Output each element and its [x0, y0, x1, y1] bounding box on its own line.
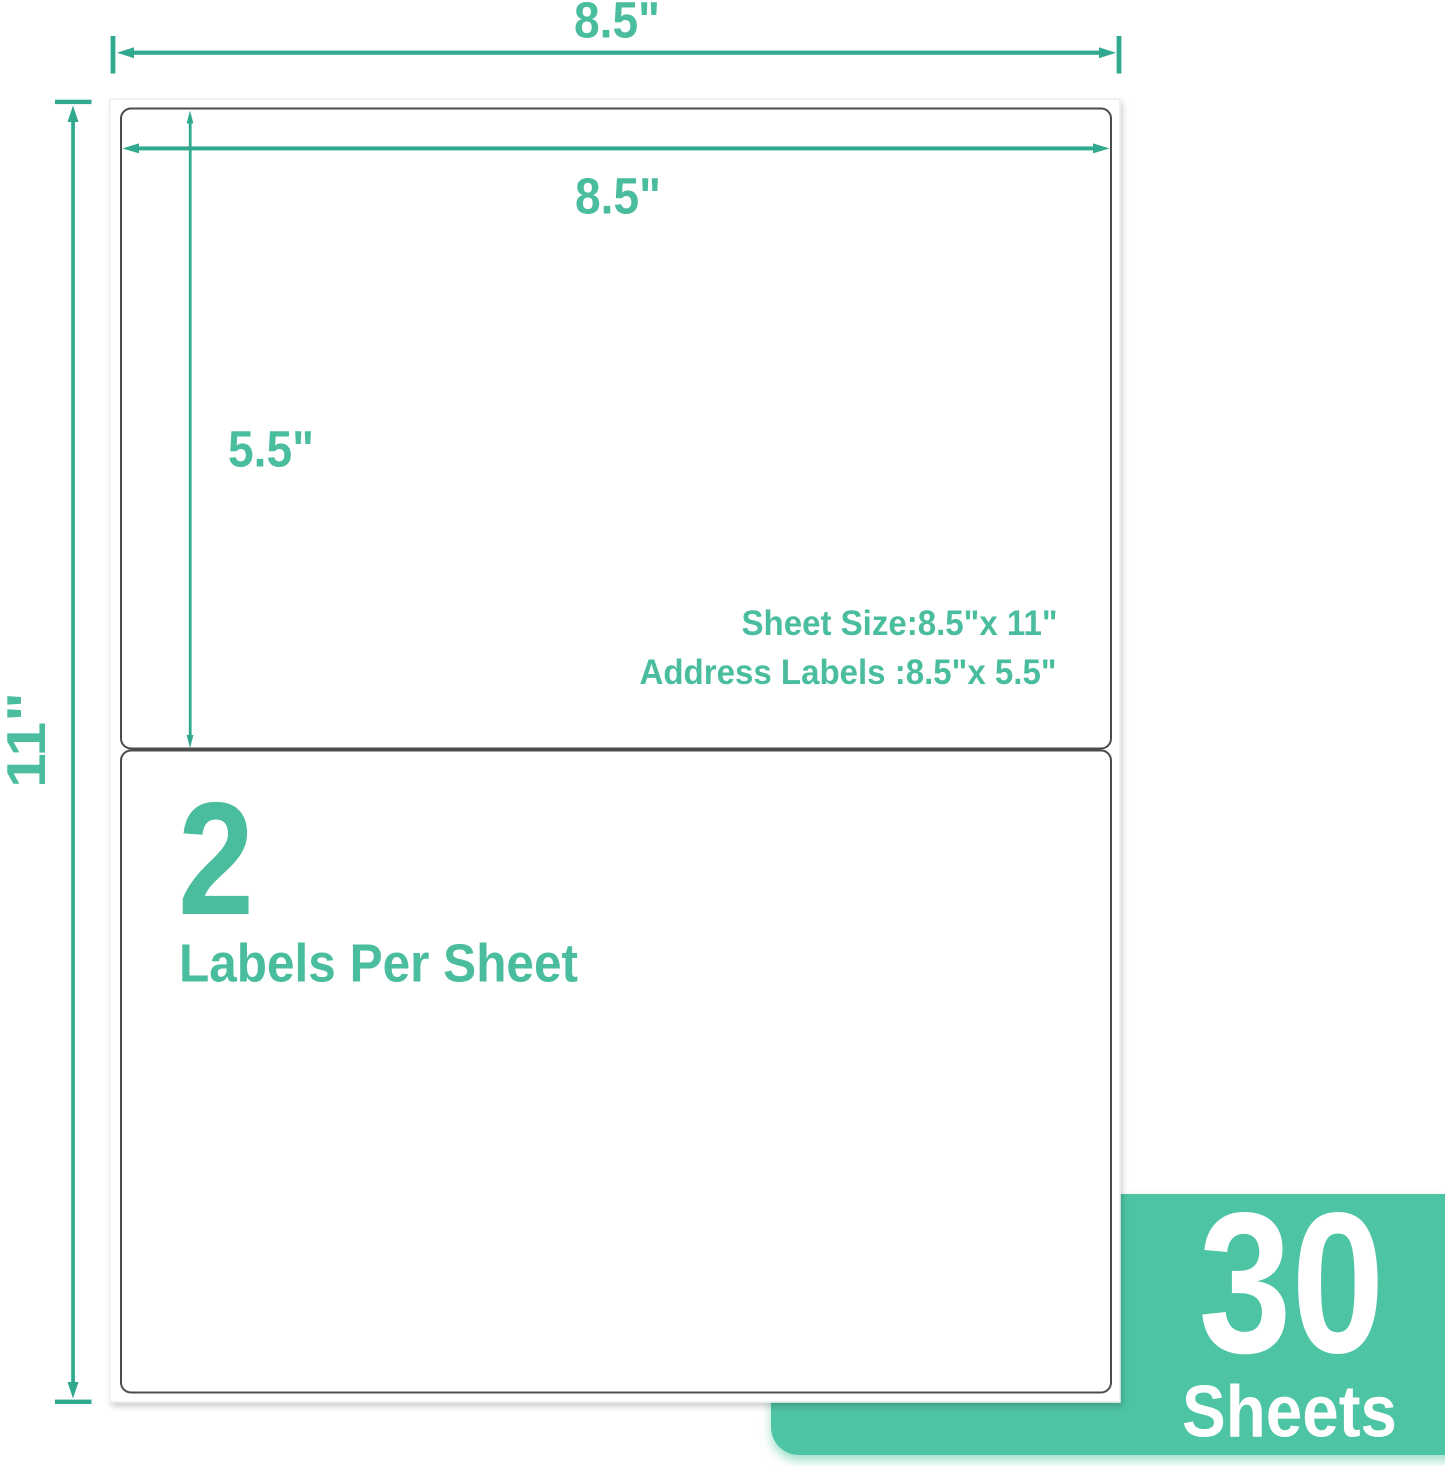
svg-text:Labels Per Sheet: Labels Per Sheet	[179, 935, 578, 994]
svg-text:30: 30	[1199, 1171, 1385, 1395]
svg-text:5.5": 5.5"	[228, 421, 314, 478]
svg-text:Sheets: Sheets	[1182, 1372, 1397, 1453]
svg-text:11": 11"	[0, 692, 57, 788]
svg-text:8.5": 8.5"	[574, 0, 660, 49]
svg-text:2: 2	[178, 770, 254, 949]
svg-text:Sheet Size:8.5"x 11": Sheet Size:8.5"x 11"	[742, 604, 1058, 643]
svg-text:8.5": 8.5"	[575, 168, 661, 225]
svg-text:Address Labels :8.5"x 5.5": Address Labels :8.5"x 5.5"	[640, 653, 1057, 692]
